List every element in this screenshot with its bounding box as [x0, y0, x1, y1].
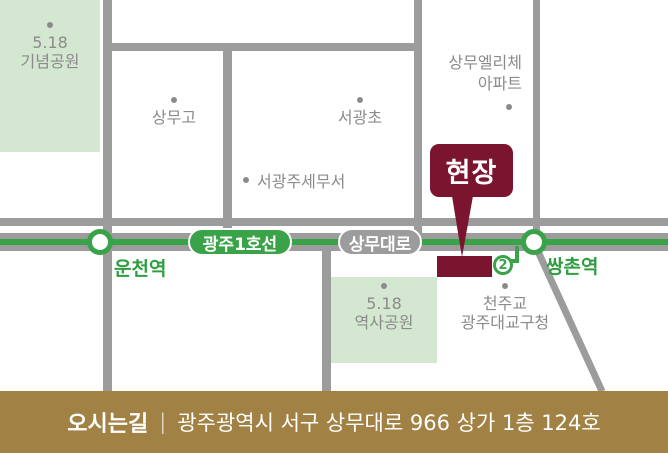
road-vertical-mid-right: [414, 0, 422, 251]
poi-dot-icon: [357, 97, 363, 103]
sangmu-high-label: 상무고: [134, 97, 214, 127]
apartment-line2: 아파트: [404, 73, 522, 94]
poi-dot-icon: [381, 283, 387, 289]
tax-office-text: 서광주세무서: [257, 168, 345, 192]
poi-dot-icon: [47, 22, 53, 28]
apartment-line1: 상무엘리체: [404, 52, 522, 73]
history-park-line1: 5.18: [366, 294, 402, 313]
address-bar-title: 오시는길: [67, 406, 148, 438]
memorial-park-line1: 5.18: [32, 33, 68, 52]
history-park-label: 5.18 역사공원: [331, 283, 437, 332]
site-pointer-icon: [452, 196, 473, 257]
road-horizontal-top: [112, 43, 415, 51]
uncheon-station-icon: [87, 229, 113, 255]
ssangchon-station-label: 쌍촌역: [546, 252, 598, 279]
road-vertical-mid-left: [223, 43, 232, 251]
road-vertical-lower: [322, 251, 331, 392]
site-building-block: [437, 256, 492, 277]
address-bar: 오시는길 | 광주광역시 서구 상무대로 966 상가 1층 124호: [0, 391, 668, 453]
address-bar-divider: |: [159, 410, 166, 434]
location-map: 2 광주1호선 상무대로 운천역 쌍촌역 현장 5.18 기념공원 상무고 서광…: [0, 0, 668, 453]
road-horizontal-upper: [0, 218, 668, 226]
history-park-line2: 역사공원: [355, 313, 414, 332]
memorial-park-line2: 기념공원: [21, 52, 80, 71]
metro-line-badge: 광주1호선: [188, 228, 292, 256]
catholic-line1: 천주교: [483, 294, 527, 313]
apartment-label: 상무엘리체 아파트: [404, 52, 522, 94]
seogwang-elem-label: 서광초: [320, 97, 400, 127]
sangmu-high-text: 상무고: [152, 108, 196, 127]
poi-dot-icon: [171, 97, 177, 103]
exit-2-icon: 2: [493, 255, 513, 275]
catholic-label: 천주교 광주대교구청: [440, 283, 570, 332]
tax-office-label: 서광주세무서: [243, 168, 345, 192]
uncheon-station-label: 운천역: [114, 254, 166, 281]
ssangchon-station-icon: [521, 229, 547, 255]
poi-dot-icon: [502, 283, 508, 289]
road-name-badge: 상무대로: [338, 228, 422, 256]
poi-dot-icon: [243, 177, 249, 183]
address-text: 광주광역시 서구 상무대로 966 상가 1층 124호: [177, 407, 600, 437]
site-badge: 현장: [430, 144, 513, 197]
road-vertical-right: [533, 0, 540, 243]
catholic-line2: 광주대교구청: [461, 313, 549, 332]
poi-dot-icon: [506, 104, 512, 110]
road-vertical-left: [103, 0, 112, 392]
memorial-park-label: 5.18 기념공원: [7, 22, 93, 71]
seogwang-elem-text: 서광초: [338, 108, 382, 127]
